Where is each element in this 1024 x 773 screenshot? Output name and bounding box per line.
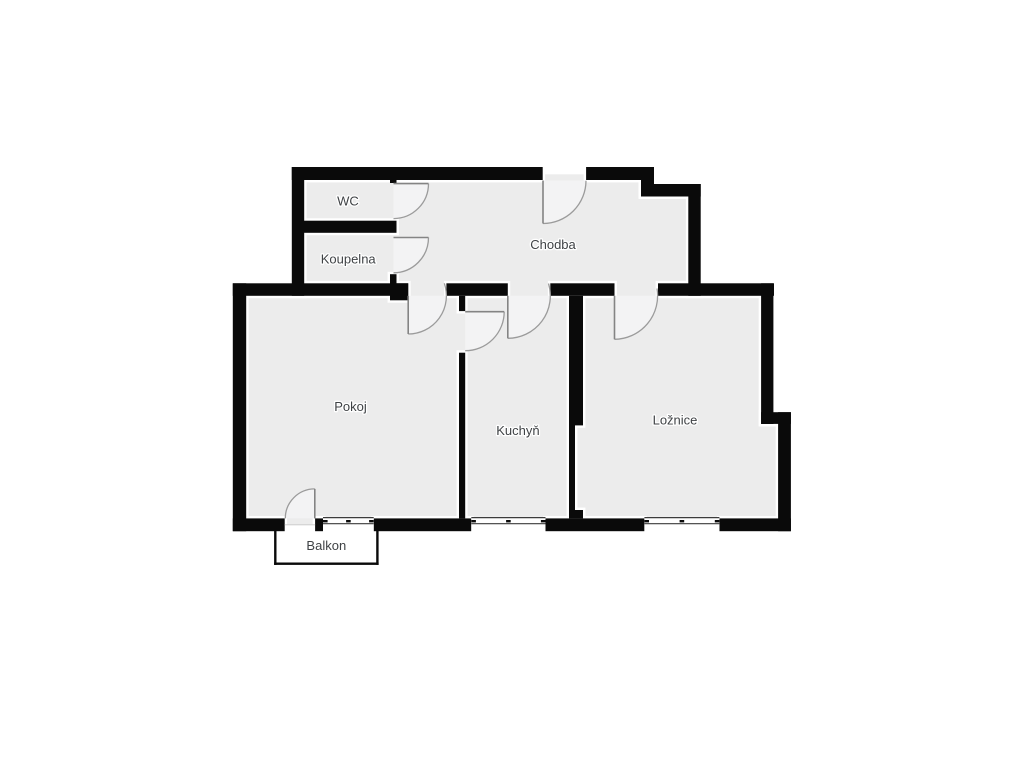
svg-text:Chodba: Chodba — [530, 237, 576, 252]
svg-text:Pokoj: Pokoj — [334, 399, 367, 414]
svg-text:Kuchyň: Kuchyň — [496, 423, 539, 438]
svg-text:Ložnice: Ložnice — [653, 413, 698, 428]
svg-text:WC: WC — [337, 194, 359, 209]
svg-text:Koupelna: Koupelna — [321, 252, 377, 267]
svg-text:Balkon: Balkon — [306, 538, 346, 553]
